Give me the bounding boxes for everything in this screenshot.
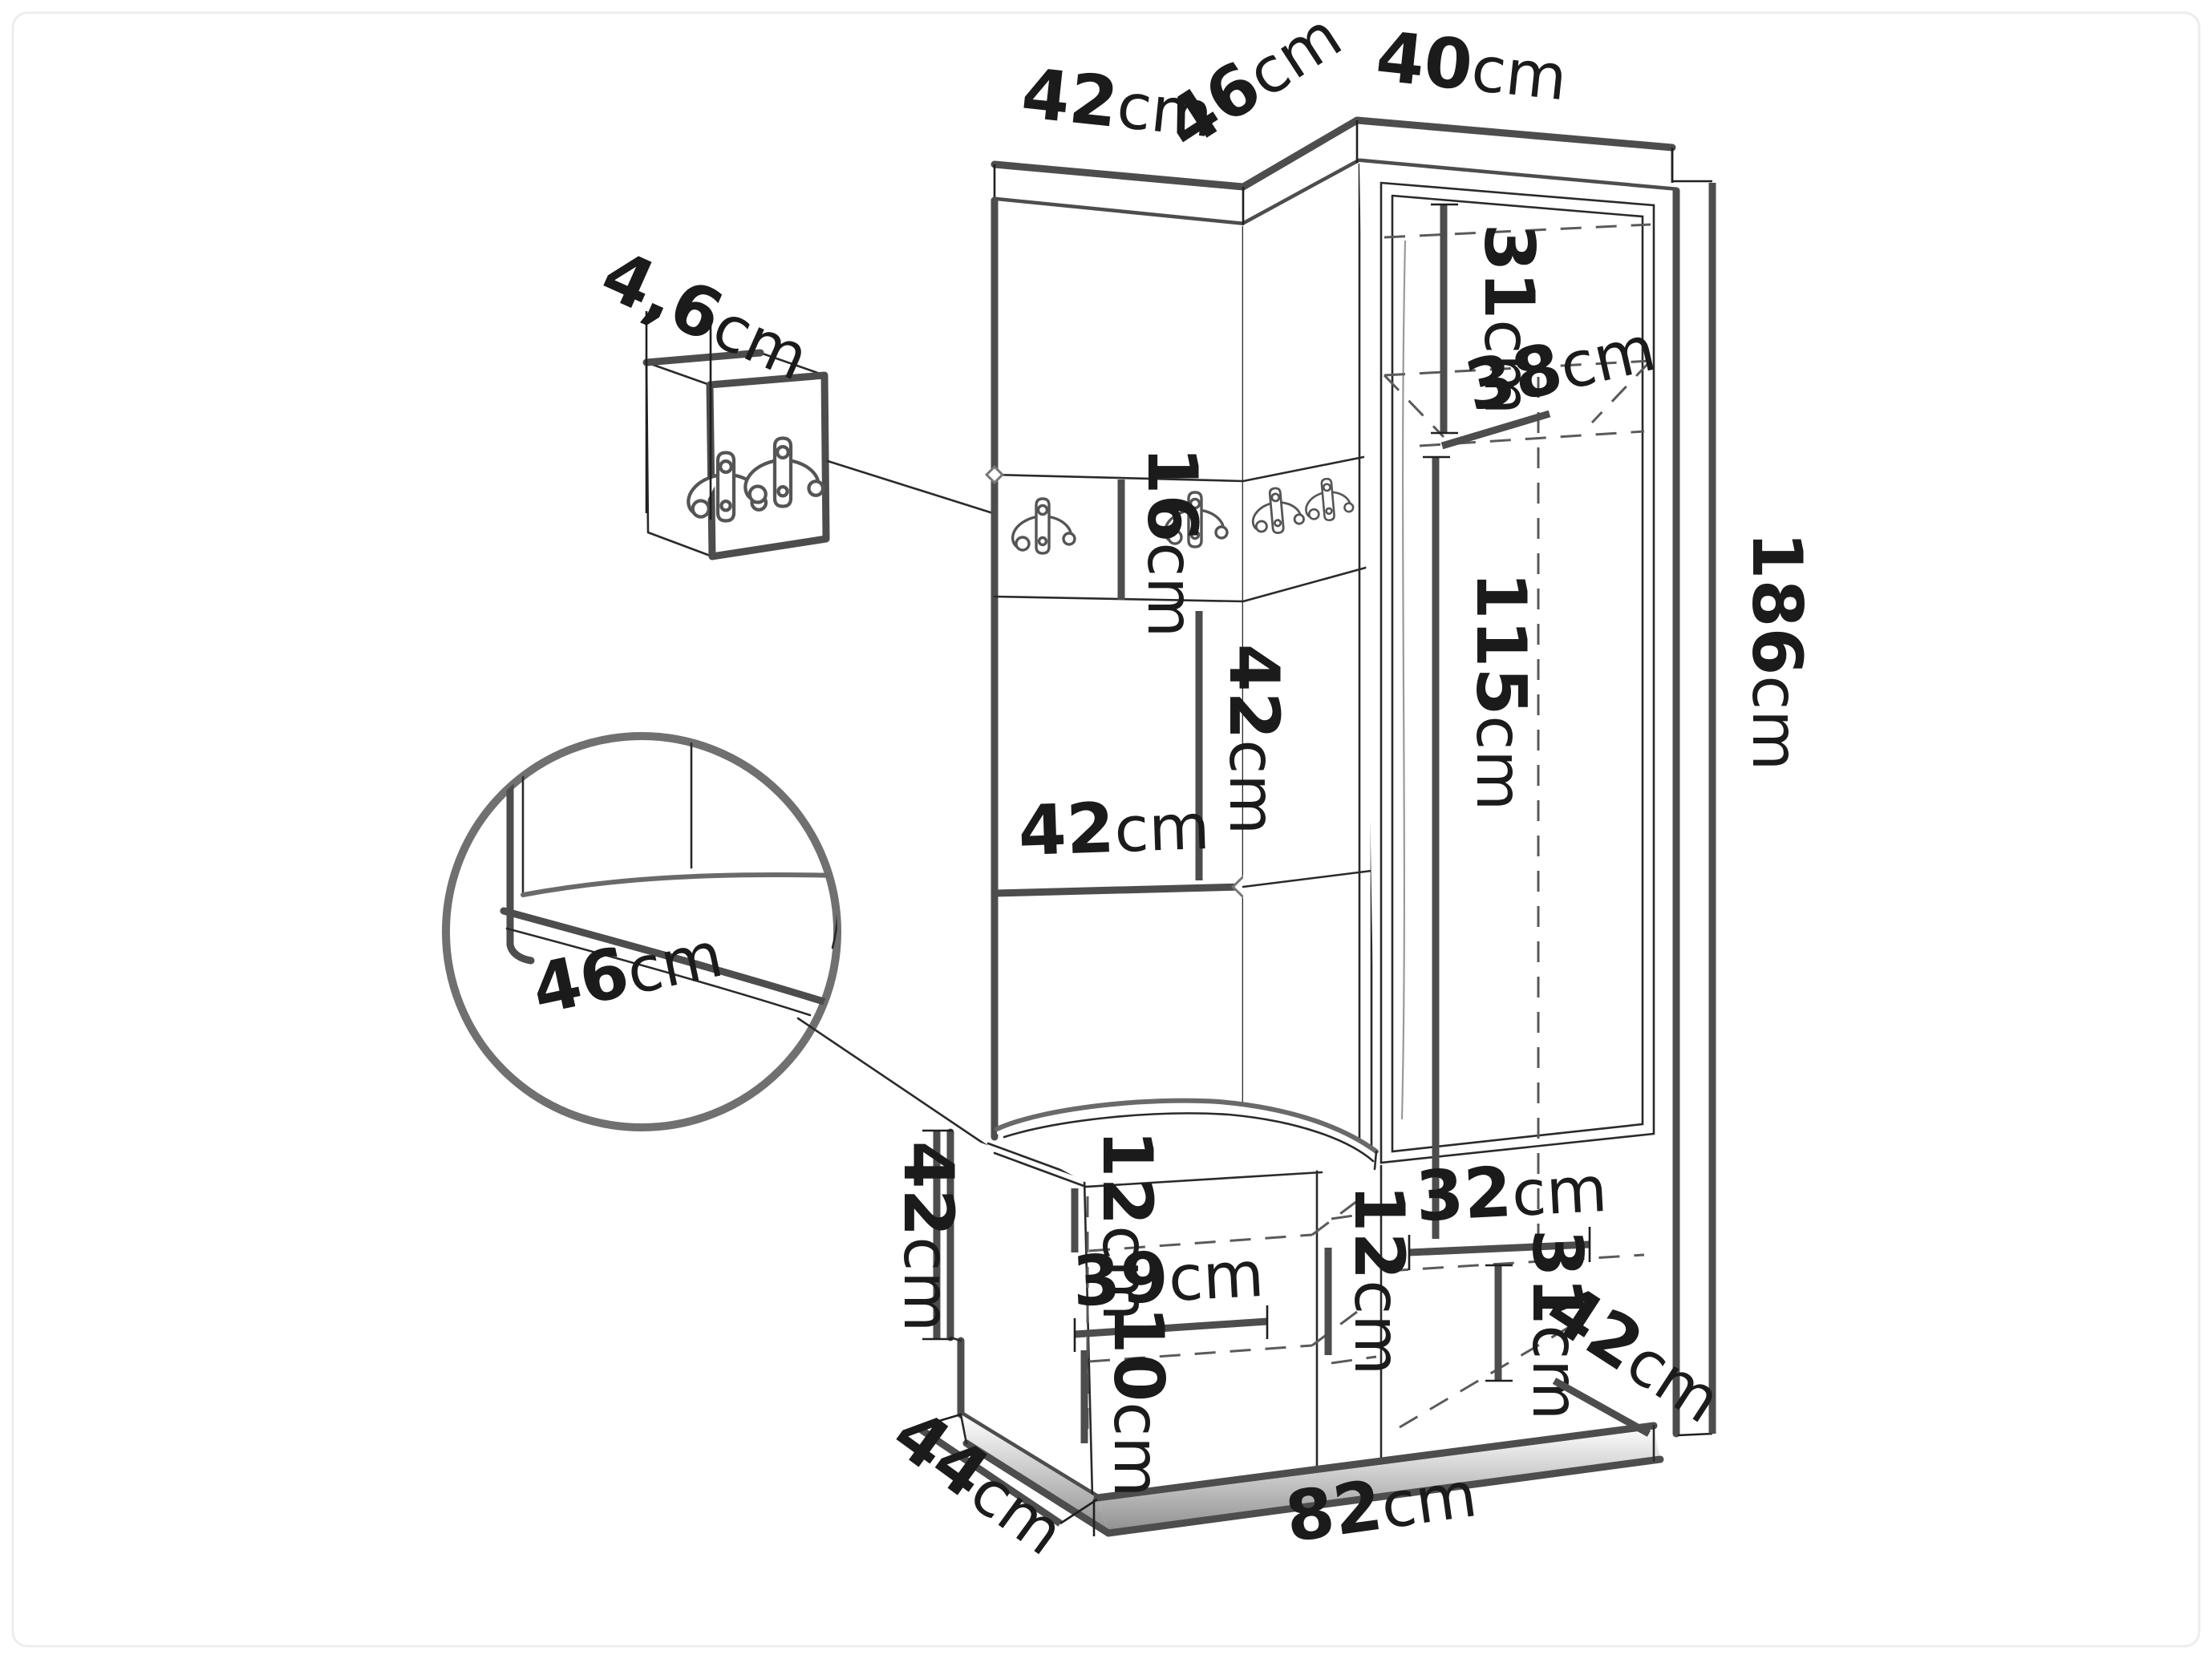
leader-line-hook-panel (828, 461, 993, 513)
dim-hook-strip-group: 16cm (1121, 447, 1212, 638)
dim-bench-bottom-opening: 10cm (1098, 1306, 1178, 1498)
dim-corner-opening: 12cm (1339, 1184, 1419, 1376)
dim-corner-opening-group: 12cm (1328, 1184, 1419, 1376)
dim-total-height: 186cm (1736, 532, 1817, 771)
dim-bench-height: 42cm (888, 1141, 968, 1333)
seat-detail-inset: 46cm (446, 730, 1007, 1159)
dim-middle-shelf-width: 42cm (1017, 785, 1211, 872)
dim-hook-strip-height: 16cm (1132, 447, 1212, 638)
inset-circle (446, 736, 837, 1127)
detail-hook-panel: 4,6cm (590, 235, 993, 556)
left-panel (986, 200, 1254, 1145)
dim-bench-height-group: 42cm (888, 1131, 968, 1339)
dim-wardrobe-inner-height: 115cm (1460, 572, 1541, 811)
dim-top-right-width: 40cm (1372, 17, 1571, 116)
product-dimension-image: 4,6cm 46cm (0, 0, 2212, 1659)
dimension-diagram: 4,6cm 46cm (0, 0, 2212, 1659)
dim-lower-cabinet-width: 32cm (1414, 1147, 1609, 1237)
dim-total-height-group: 186cm (1672, 149, 1817, 1435)
leader-line-seat (798, 1018, 1007, 1159)
dim-middle-opening-height: 42cm (1213, 644, 1294, 836)
